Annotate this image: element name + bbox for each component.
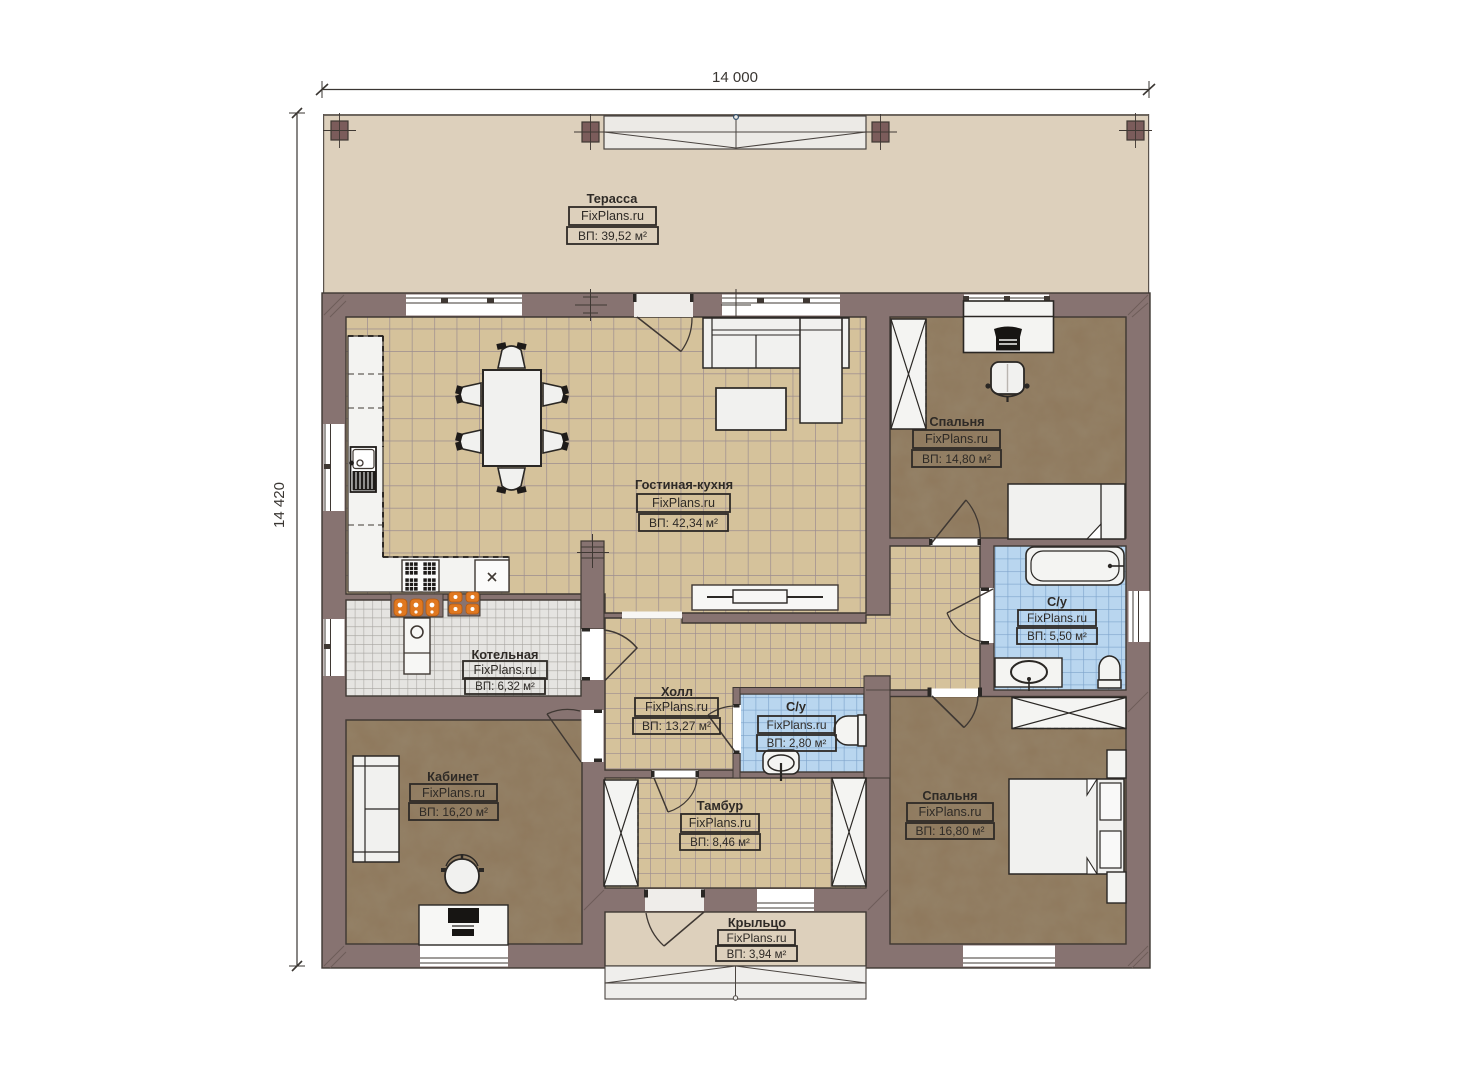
- svg-text:FixPlans.ru: FixPlans.ru: [422, 786, 485, 800]
- svg-text:Спальня: Спальня: [922, 788, 977, 803]
- svg-text:Спальня: Спальня: [929, 414, 984, 429]
- svg-text:ВП: 5,50 м²: ВП: 5,50 м²: [1027, 631, 1087, 643]
- svg-text:С/у: С/у: [1047, 594, 1068, 609]
- svg-text:FixPlans.ru: FixPlans.ru: [919, 805, 982, 819]
- svg-text:Тамбур: Тамбур: [697, 798, 744, 813]
- svg-text:FixPlans.ru: FixPlans.ru: [581, 209, 644, 223]
- svg-text:FixPlans.ru: FixPlans.ru: [1027, 611, 1087, 625]
- svg-text:14 000: 14 000: [712, 69, 758, 86]
- svg-text:FixPlans.ru: FixPlans.ru: [645, 700, 708, 714]
- svg-text:С/у: С/у: [786, 699, 807, 714]
- svg-text:Терасса: Терасса: [587, 191, 639, 206]
- svg-text:Крыльцо: Крыльцо: [728, 915, 786, 930]
- svg-text:ВП: 6,32 м²: ВП: 6,32 м²: [475, 681, 535, 693]
- svg-text:ВП: 3,94 м²: ВП: 3,94 м²: [727, 949, 787, 961]
- svg-text:FixPlans.ru: FixPlans.ru: [474, 663, 537, 677]
- svg-text:ВП: 16,20 м²: ВП: 16,20 м²: [419, 805, 488, 819]
- svg-text:FixPlans.ru: FixPlans.ru: [689, 816, 752, 830]
- svg-text:FixPlans.ru: FixPlans.ru: [766, 718, 826, 732]
- svg-text:ВП: 8,46 м²: ВП: 8,46 м²: [690, 837, 750, 849]
- svg-text:ВП: 42,34 м²: ВП: 42,34 м²: [649, 516, 718, 530]
- svg-text:FixPlans.ru: FixPlans.ru: [726, 931, 786, 945]
- svg-text:Кабинет: Кабинет: [427, 769, 479, 784]
- svg-text:14 420: 14 420: [271, 482, 288, 528]
- svg-text:ВП: 13,27 м²: ВП: 13,27 м²: [642, 719, 711, 733]
- svg-text:FixPlans.ru: FixPlans.ru: [652, 496, 715, 510]
- svg-text:ВП: 39,52 м²: ВП: 39,52 м²: [578, 229, 647, 243]
- svg-text:FixPlans.ru: FixPlans.ru: [925, 432, 988, 446]
- svg-text:ВП: 16,80 м²: ВП: 16,80 м²: [916, 824, 985, 838]
- svg-text:Гостиная-кухня: Гостиная-кухня: [635, 477, 733, 492]
- svg-text:Холл: Холл: [661, 684, 693, 699]
- svg-text:ВП: 14,80 м²: ВП: 14,80 м²: [922, 452, 991, 466]
- svg-text:Котельная: Котельная: [471, 647, 538, 662]
- svg-text:ВП: 2,80 м²: ВП: 2,80 м²: [767, 738, 827, 750]
